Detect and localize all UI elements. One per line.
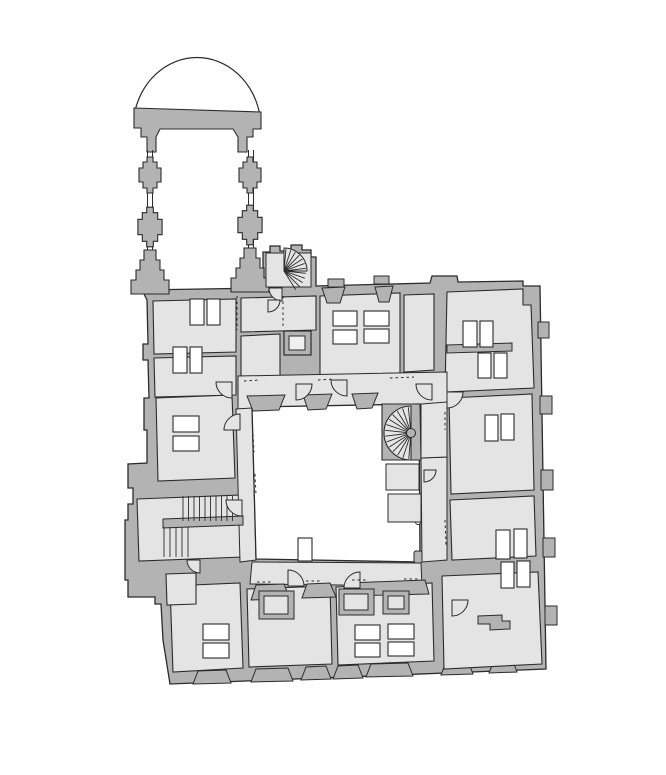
buttress-bottom-edge (301, 666, 331, 680)
room-north-middle-east (404, 294, 434, 372)
window-opening (494, 353, 507, 378)
window-opening (463, 321, 477, 347)
window-opening (355, 625, 380, 640)
buttress-right-edge (545, 606, 557, 625)
buttress-bottom-edge (251, 668, 293, 682)
buttress-top-edge (374, 276, 389, 284)
room-pilaster-south (302, 583, 336, 598)
buttress-right-edge (543, 538, 555, 557)
stair-landing (386, 464, 419, 490)
quatrefoil-pier (239, 157, 261, 193)
room-west-small (166, 573, 196, 605)
window-opening (517, 561, 530, 587)
window-opening (333, 330, 357, 344)
window-opening (364, 311, 389, 326)
window-opening (203, 624, 229, 640)
window-opening (173, 416, 199, 432)
subroom-interior (264, 596, 288, 614)
quatrefoil-pier (238, 205, 262, 245)
window-opening (478, 353, 491, 378)
window-opening (501, 414, 514, 440)
buttress-top-edge (328, 279, 344, 287)
window-opening (333, 311, 357, 326)
buttress-right-edge (541, 470, 553, 490)
gallery-pier-base (131, 250, 169, 294)
buttress-bottom-edge (366, 663, 413, 677)
window-opening (496, 530, 510, 559)
window-opening (203, 643, 229, 658)
window-opening (514, 529, 527, 558)
buttress-bottom-edge (193, 670, 231, 684)
window-opening (485, 415, 498, 441)
floor-plan-svg (0, 0, 666, 775)
stair-landing (388, 494, 421, 522)
window-opening (355, 643, 380, 657)
window-opening (388, 642, 414, 656)
apse-dome-outline (134, 58, 260, 116)
quatrefoil-pier (139, 157, 161, 193)
corridor-east-upper (421, 402, 447, 458)
window-opening (207, 299, 220, 325)
quatrefoil-pier (138, 207, 162, 247)
screenshot-root (0, 0, 666, 775)
window-opening (501, 562, 514, 588)
spiral-stair-newel (407, 429, 416, 438)
window-opening (190, 347, 202, 373)
window-opening (190, 299, 204, 325)
subroom-interior (344, 594, 368, 610)
window-opening (364, 329, 389, 343)
courtyard-niche (298, 538, 312, 561)
apse-base-band (134, 108, 261, 152)
courtyard-pier-small (414, 551, 422, 563)
room-east-middle (449, 394, 534, 494)
buttress-right-edge (538, 322, 549, 338)
buttress-bottom-edge (333, 665, 363, 679)
window-opening (173, 347, 187, 373)
subroom-interior (388, 596, 404, 609)
light-shaft-opening (289, 336, 305, 350)
courtyard-pilaster (247, 395, 285, 411)
buttress-right-edge (540, 396, 552, 414)
window-opening (480, 321, 493, 347)
window-opening (173, 436, 199, 451)
window-opening (388, 624, 414, 639)
